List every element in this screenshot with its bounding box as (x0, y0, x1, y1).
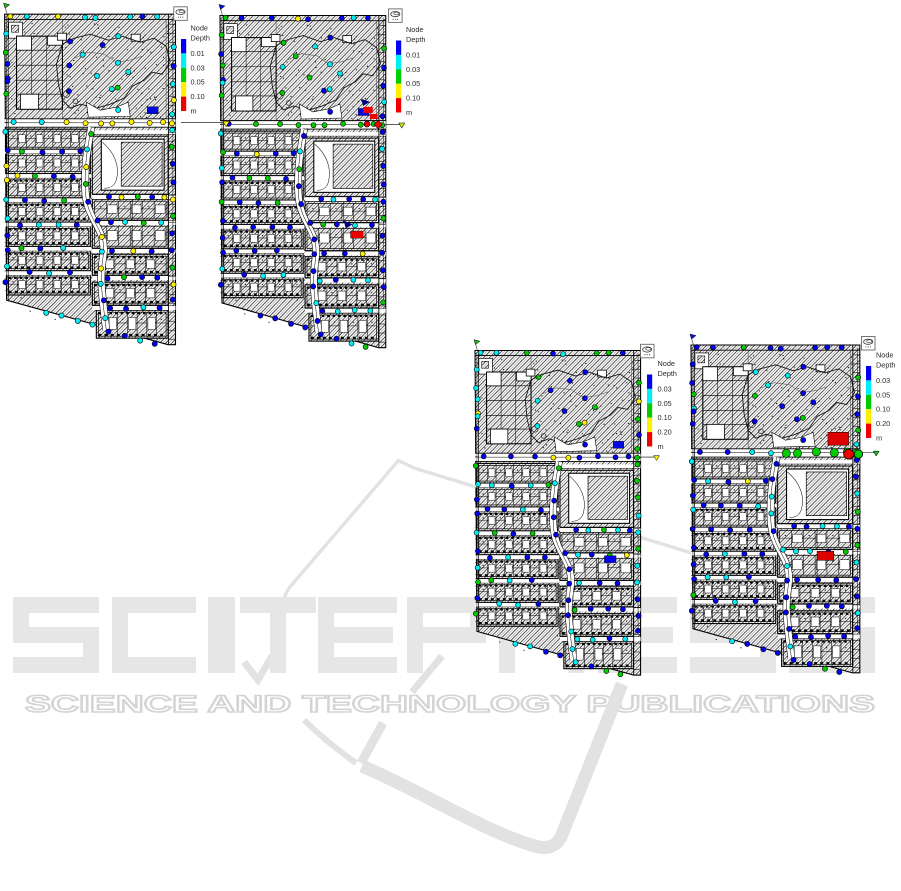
svg-text:Depth: Depth (658, 369, 677, 378)
svg-text:0.03: 0.03 (406, 65, 420, 74)
svg-text:Node: Node (876, 351, 893, 360)
svg-text:0.10: 0.10 (658, 413, 672, 422)
svg-text:Depth: Depth (406, 35, 425, 44)
svg-text:m: m (406, 108, 412, 117)
svg-text:0.05: 0.05 (406, 79, 420, 88)
svg-text:Node: Node (191, 24, 208, 33)
svg-text:Depth: Depth (191, 34, 210, 43)
svg-text:0.01: 0.01 (406, 50, 420, 59)
svg-text:0.05: 0.05 (658, 399, 672, 408)
svg-text:0.03: 0.03 (876, 376, 890, 385)
svg-text:Depth: Depth (876, 361, 895, 370)
svg-text:SCIENCE AND TECHNOLOGY PUBLICA: SCIENCE AND TECHNOLOGY PUBLICATIONS (25, 691, 875, 718)
svg-text:Node: Node (406, 25, 423, 34)
svg-text:0.10: 0.10 (191, 92, 205, 101)
svg-text:0.03: 0.03 (658, 384, 672, 393)
svg-text:Node: Node (658, 359, 675, 368)
svg-text:0.20: 0.20 (876, 419, 890, 428)
svg-text:0.10: 0.10 (406, 94, 420, 103)
svg-text:0.10: 0.10 (876, 405, 890, 414)
svg-text:m: m (658, 442, 664, 451)
svg-text:m: m (876, 434, 882, 443)
svg-text:m: m (191, 107, 197, 116)
svg-text:0.05: 0.05 (191, 78, 205, 87)
svg-text:0.01: 0.01 (191, 49, 205, 58)
svg-text:0.05: 0.05 (876, 390, 890, 399)
svg-text:0.03: 0.03 (191, 63, 205, 72)
svg-text:0.20: 0.20 (658, 428, 672, 437)
